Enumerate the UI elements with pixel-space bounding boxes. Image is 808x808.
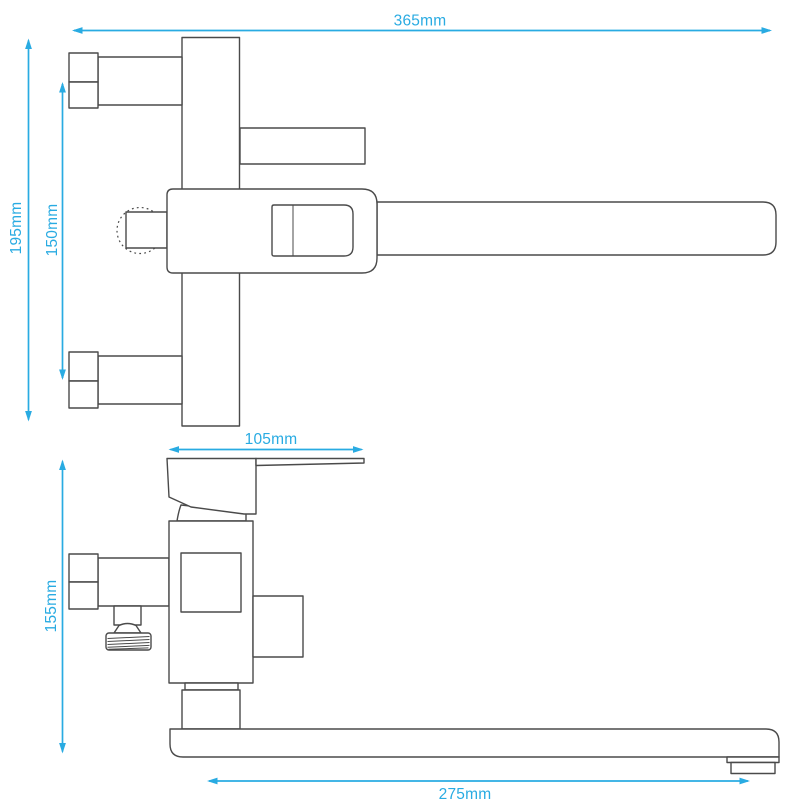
spout-front — [377, 202, 776, 255]
hose-outlet-neck — [114, 606, 141, 625]
arrowhead-up — [25, 39, 32, 50]
wall-pipe-side — [98, 558, 169, 606]
bottom-inlet-fitting-upper — [69, 352, 98, 381]
arrowhead-down — [25, 411, 32, 422]
handle-lever — [256, 459, 364, 466]
dimensions: 365mm 195mm 150mm 105mm 155m — [8, 13, 772, 804]
arrowhead-up — [59, 460, 66, 471]
arrowhead-down — [59, 370, 66, 381]
side-view — [69, 459, 779, 774]
diverter-knob — [253, 596, 303, 657]
technical-drawing-page: 365mm 195mm 150mm 105mm 155m — [0, 0, 808, 808]
top-inlet-fitting-upper — [69, 53, 98, 82]
dimension-label: 275mm — [439, 786, 492, 803]
dimension-label: 150mm — [44, 204, 61, 257]
dimension-label: 155mm — [43, 580, 60, 633]
arrowhead-right — [740, 778, 751, 785]
front-view — [69, 38, 776, 427]
arrowhead-left — [169, 446, 180, 453]
dimension-spout-length: 275mm — [207, 778, 750, 803]
dimension-label: 195mm — [8, 202, 25, 255]
handle-front — [240, 128, 365, 164]
wall-fitting-side-lower — [69, 582, 98, 609]
dimension-inlet-spacing: 150mm — [44, 82, 66, 380]
arrowhead-down — [59, 743, 66, 754]
cartridge-plate — [272, 205, 353, 256]
body-inset-panel — [181, 553, 241, 612]
top-inlet-pipe — [98, 57, 182, 105]
spout-nut — [182, 690, 240, 729]
faucet-technical-drawing: 365mm 195mm 150mm 105mm 155m — [0, 0, 808, 808]
dimension-label: 105mm — [245, 431, 298, 448]
bottom-inlet-fitting-lower — [69, 381, 98, 408]
arrowhead-left — [207, 778, 218, 785]
dimension-overall-width: 365mm — [72, 13, 772, 34]
arrowhead-up — [59, 82, 66, 93]
arrowhead-right — [762, 27, 773, 34]
arrowhead-left — [72, 27, 83, 34]
aerator-body — [731, 763, 775, 774]
dimension-overall-height: 195mm — [8, 39, 32, 422]
spout-side — [170, 729, 779, 757]
dimension-side-height: 155mm — [43, 460, 66, 754]
dimension-handle-length: 105mm — [169, 431, 364, 453]
bottom-inlet-pipe — [98, 356, 182, 404]
aerator-flange — [727, 757, 779, 763]
shower-outlet-stub — [126, 212, 167, 248]
spout-neck — [185, 683, 238, 690]
dimension-label: 365mm — [394, 13, 447, 30]
arrowhead-right — [353, 446, 364, 453]
top-inlet-fitting-lower — [69, 82, 98, 108]
wall-fitting-side-upper — [69, 554, 98, 582]
